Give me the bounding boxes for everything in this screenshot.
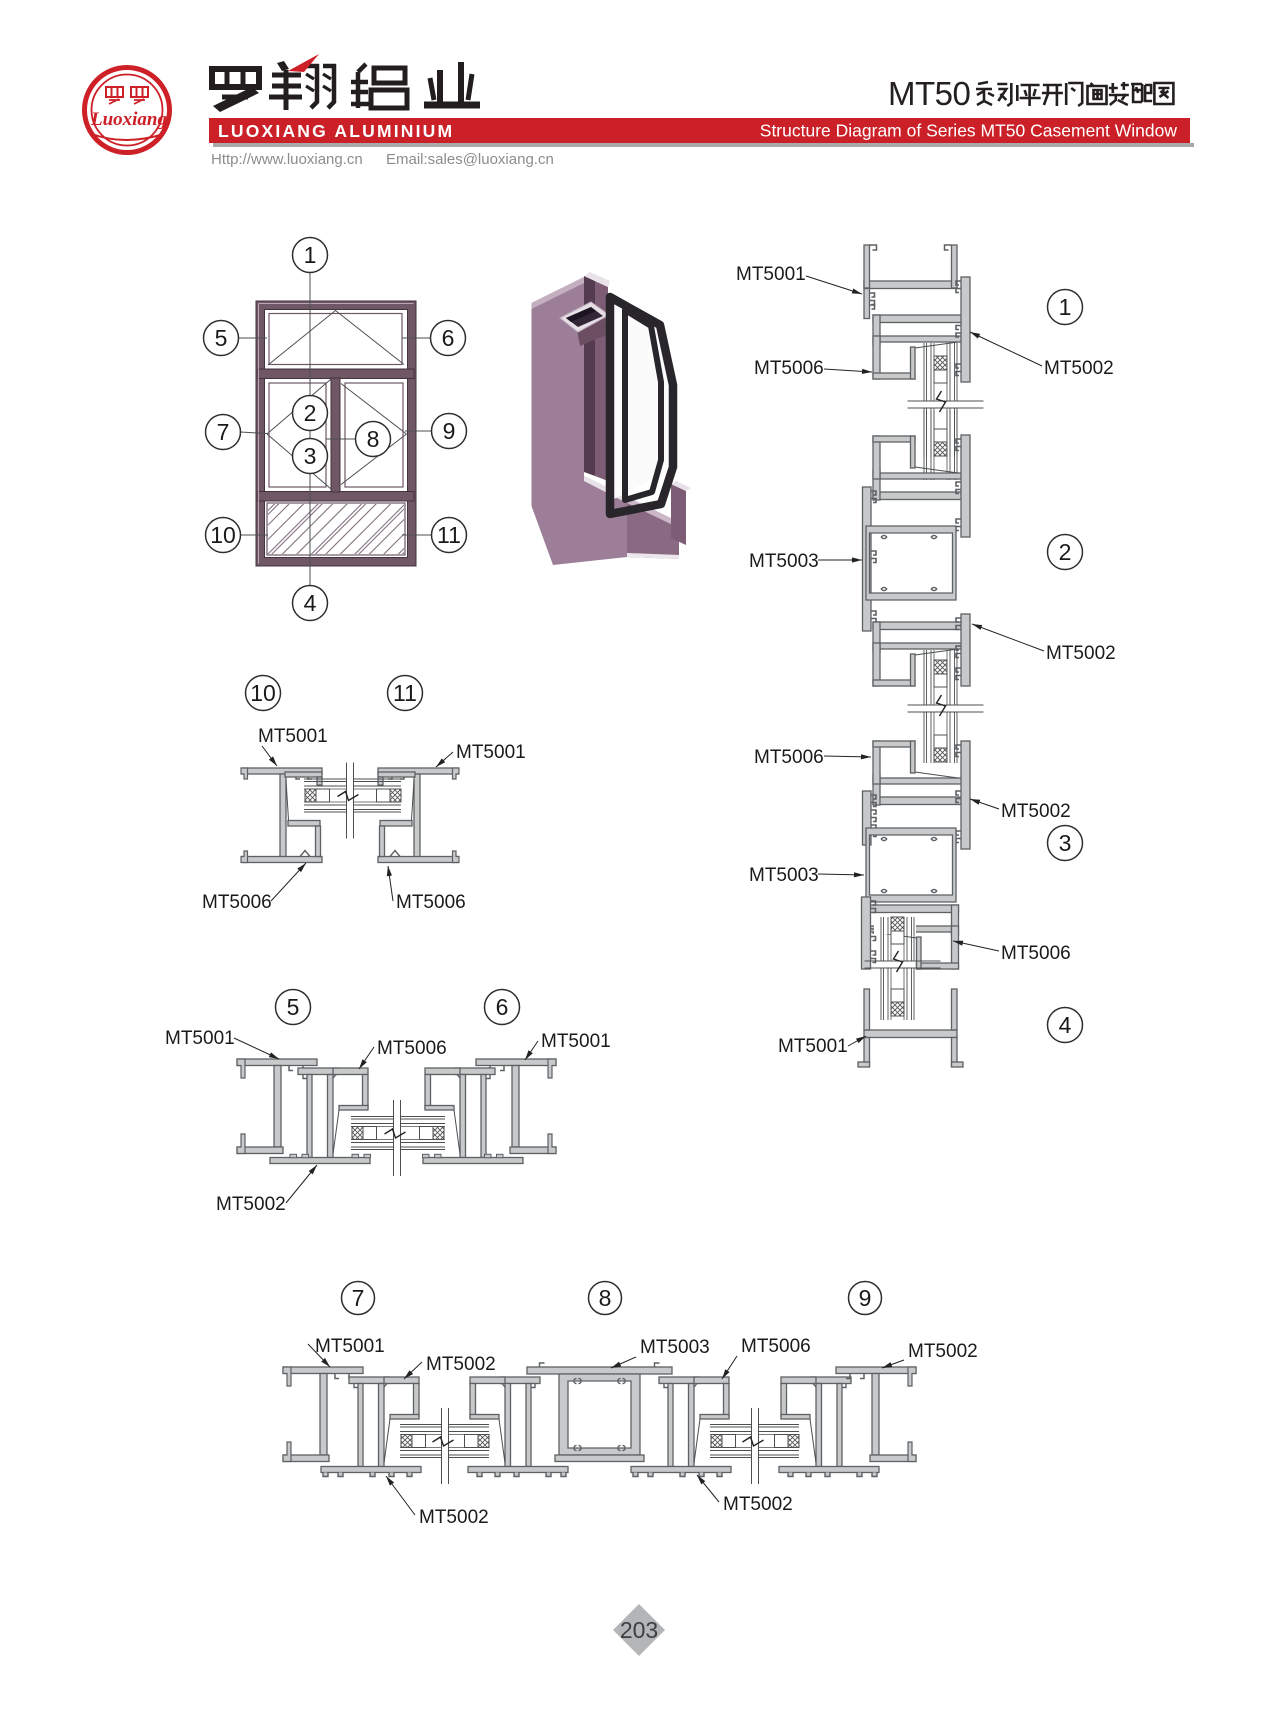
svg-text:MT5001: MT5001 — [456, 742, 526, 763]
svg-text:9: 9 — [859, 1285, 872, 1311]
svg-text:2: 2 — [304, 400, 317, 426]
svg-text:MT5001: MT5001 — [315, 1336, 385, 1357]
svg-text:7: 7 — [352, 1285, 365, 1311]
svg-text:1: 1 — [1059, 294, 1072, 320]
svg-text:Structure Diagram of Series MT: Structure Diagram of Series MT50 Casemen… — [760, 121, 1178, 141]
svg-text:8: 8 — [367, 426, 380, 452]
svg-text:4: 4 — [304, 590, 317, 616]
svg-text:MT5003: MT5003 — [749, 551, 819, 572]
svg-text:MT5006: MT5006 — [1001, 943, 1071, 964]
svg-text:11: 11 — [437, 522, 461, 548]
svg-text:MT5002: MT5002 — [908, 1341, 978, 1362]
svg-text:6: 6 — [496, 994, 509, 1020]
svg-text:11: 11 — [393, 680, 417, 706]
svg-text:MT5001: MT5001 — [541, 1031, 611, 1052]
svg-text:MT5001: MT5001 — [778, 1036, 848, 1057]
svg-text:MT5002: MT5002 — [1046, 643, 1116, 664]
svg-text:Http://www.luoxiang.cn: Http://www.luoxiang.cn — [211, 151, 363, 168]
svg-text:8: 8 — [599, 1285, 612, 1311]
svg-text:MT5002: MT5002 — [723, 1494, 793, 1515]
svg-text:MT5001: MT5001 — [165, 1028, 235, 1049]
svg-text:203: 203 — [620, 1617, 658, 1643]
svg-text:MT5002: MT5002 — [1001, 801, 1071, 822]
svg-text:MT5006: MT5006 — [754, 747, 824, 768]
svg-text:MT5006: MT5006 — [202, 892, 272, 913]
svg-text:MT5006: MT5006 — [377, 1038, 447, 1059]
svg-text:LUOXIANG ALUMINIUM: LUOXIANG ALUMINIUM — [218, 121, 454, 141]
svg-text:6: 6 — [442, 325, 455, 351]
svg-text:Luoxiang: Luoxiang — [90, 109, 167, 130]
svg-text:1: 1 — [304, 242, 317, 268]
svg-text:4: 4 — [1059, 1012, 1072, 1038]
svg-text:5: 5 — [287, 994, 300, 1020]
svg-text:MT5001: MT5001 — [258, 726, 328, 747]
svg-text:2: 2 — [1059, 539, 1072, 565]
svg-text:MT5006: MT5006 — [741, 1336, 811, 1357]
svg-text:10: 10 — [250, 680, 276, 706]
svg-text:MT50: MT50 — [888, 75, 971, 112]
svg-text:10: 10 — [210, 522, 236, 548]
svg-text:MT5002: MT5002 — [426, 1354, 496, 1375]
svg-text:9: 9 — [443, 418, 456, 444]
svg-text:MT5003: MT5003 — [640, 1337, 710, 1358]
svg-text:MT5002: MT5002 — [1044, 358, 1114, 379]
svg-text:MT5001: MT5001 — [736, 264, 806, 285]
svg-text:7: 7 — [217, 419, 230, 445]
svg-text:5: 5 — [215, 325, 228, 351]
svg-text:3: 3 — [1059, 830, 1072, 856]
svg-text:Email:sales@luoxiang.cn: Email:sales@luoxiang.cn — [386, 151, 554, 168]
svg-text:MT5003: MT5003 — [749, 865, 819, 886]
svg-text:MT5006: MT5006 — [396, 892, 466, 913]
svg-text:MT5002: MT5002 — [216, 1194, 286, 1215]
svg-text:MT5006: MT5006 — [754, 358, 824, 379]
svg-text:MT5002: MT5002 — [419, 1507, 489, 1528]
svg-text:3: 3 — [304, 443, 317, 469]
